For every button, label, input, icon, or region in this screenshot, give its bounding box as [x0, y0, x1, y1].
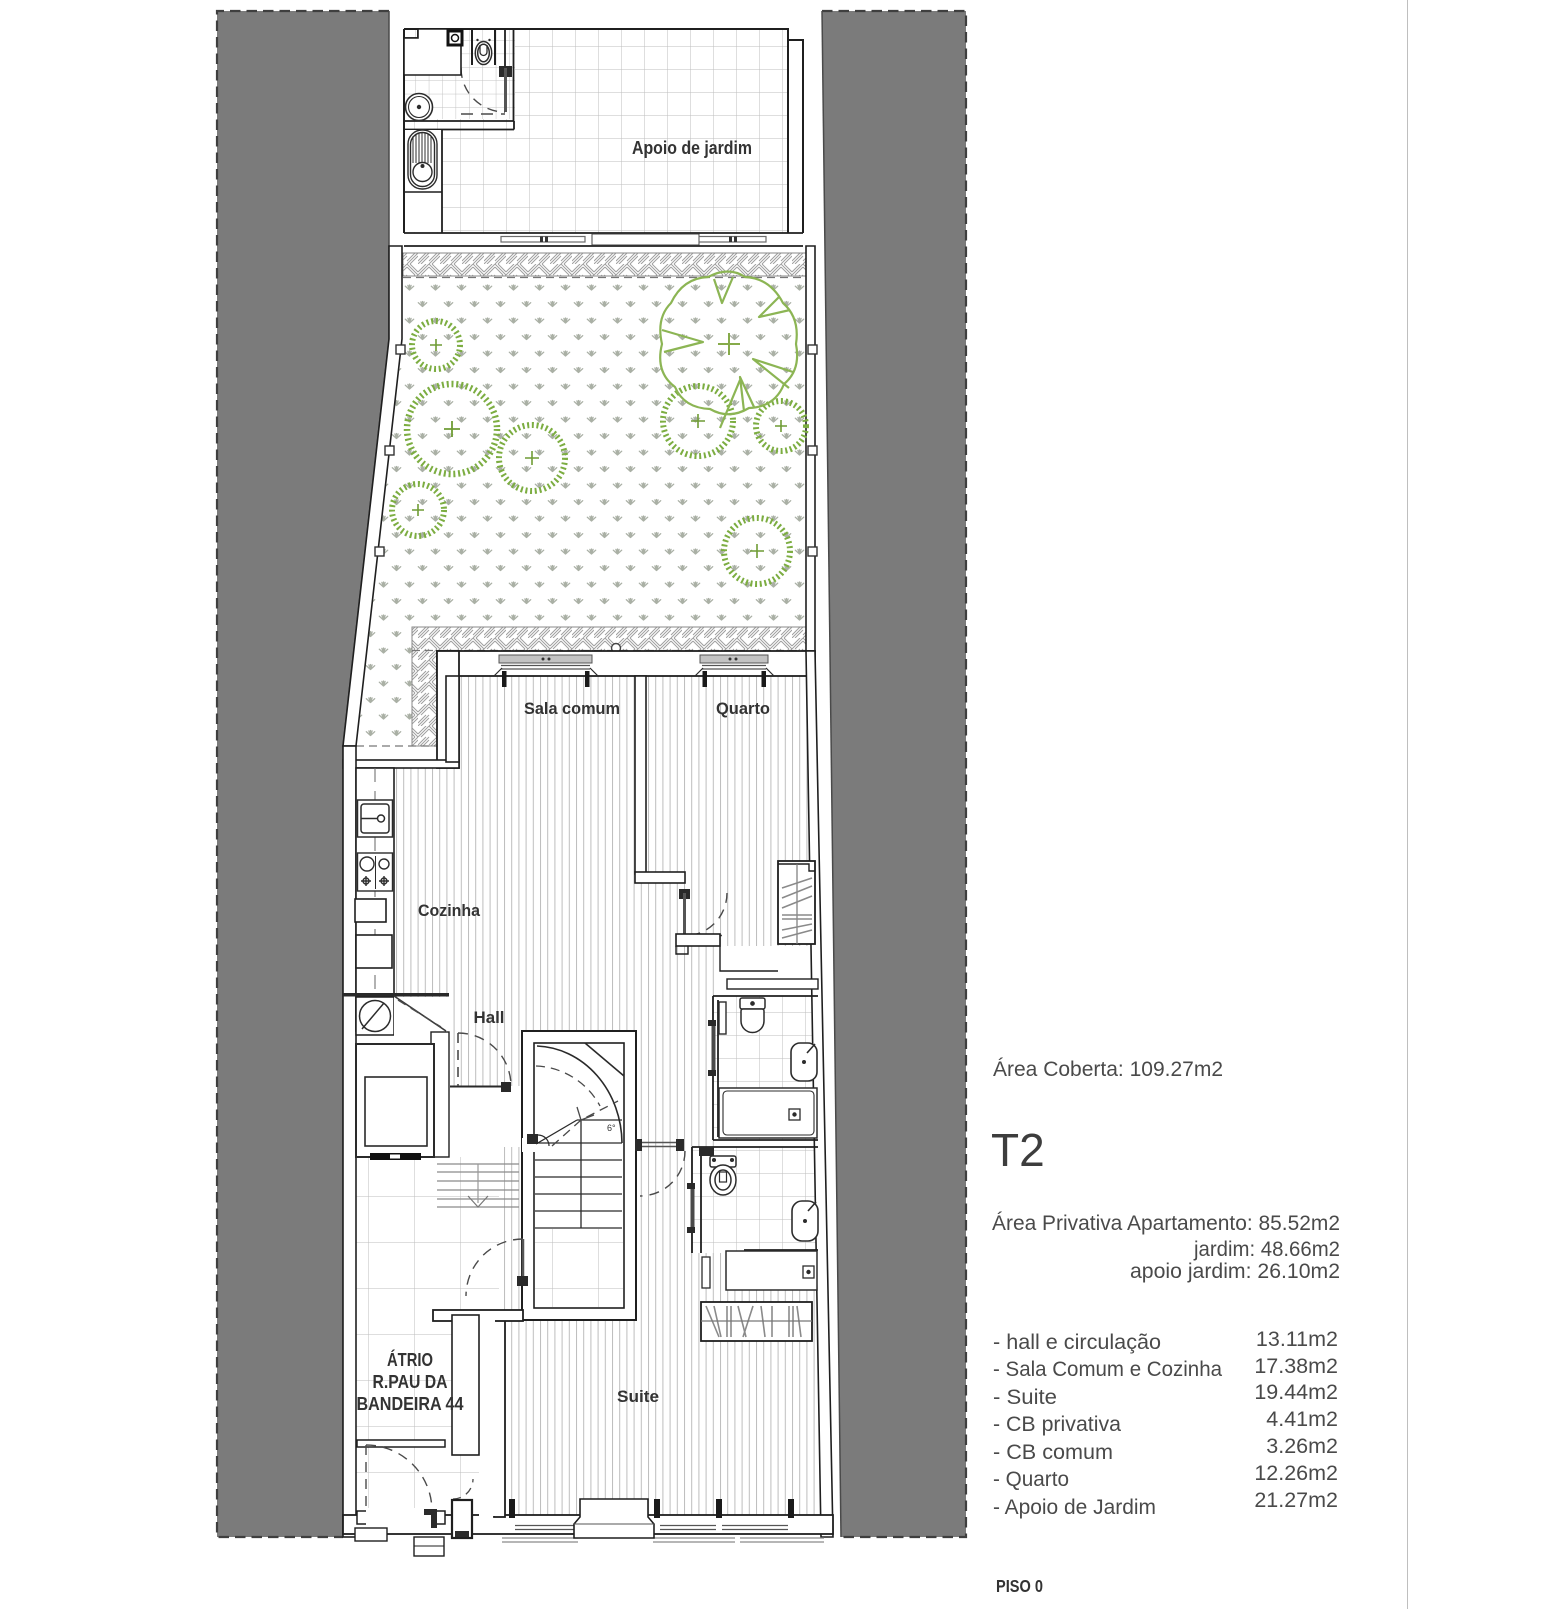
svg-text:PISO 0: PISO 0: [996, 1576, 1043, 1596]
svg-text:BANDEIRA 44: BANDEIRA 44: [357, 1394, 464, 1414]
svg-text:Suite: Suite: [617, 1387, 659, 1406]
svg-text:- hall e circulação: - hall e circulação: [993, 1330, 1161, 1354]
svg-text:ÁTRIO: ÁTRIO: [387, 1349, 433, 1370]
svg-text:R.PAU DA: R.PAU DA: [373, 1372, 448, 1392]
svg-text:Área Privativa Apartamento: 85: Área Privativa Apartamento: 85.52m2: [992, 1210, 1340, 1235]
svg-text:jardim: 48.66m2: jardim: 48.66m2: [1193, 1237, 1340, 1261]
svg-text:T2: T2: [991, 1124, 1045, 1176]
svg-text:12.26m2: 12.26m2: [1254, 1461, 1338, 1485]
svg-text:Hall: Hall: [474, 1008, 505, 1027]
svg-text:13.11m2: 13.11m2: [1256, 1327, 1338, 1351]
svg-text:- Apoio de Jardim: - Apoio de Jardim: [993, 1495, 1156, 1519]
svg-text:19.44m2: 19.44m2: [1254, 1380, 1338, 1404]
svg-text:- CB privativa: - CB privativa: [993, 1412, 1121, 1436]
svg-text:21.27m2: 21.27m2: [1254, 1488, 1338, 1512]
svg-text:3.26m2: 3.26m2: [1266, 1434, 1338, 1458]
svg-text:- Sala Comum e Cozinha: - Sala Comum e Cozinha: [993, 1357, 1222, 1381]
svg-text:- CB comum: - CB comum: [993, 1440, 1113, 1464]
svg-text:4.41m2: 4.41m2: [1266, 1407, 1338, 1431]
svg-text:Sala comum: Sala comum: [524, 699, 620, 718]
svg-text:Cozinha: Cozinha: [418, 901, 481, 920]
svg-text:apoio jardim: 26.10m2: apoio jardim: 26.10m2: [1130, 1259, 1340, 1283]
svg-text:Quarto: Quarto: [716, 699, 770, 718]
svg-text:- Suite: - Suite: [993, 1385, 1057, 1409]
svg-text:6°: 6°: [607, 1123, 616, 1133]
svg-text:Área Coberta: 109.27m2: Área Coberta: 109.27m2: [993, 1056, 1223, 1081]
svg-text:17.38m2: 17.38m2: [1254, 1354, 1338, 1378]
svg-text:Apoio de jardim: Apoio de jardim: [632, 138, 752, 158]
svg-text:- Quarto: - Quarto: [993, 1467, 1069, 1491]
